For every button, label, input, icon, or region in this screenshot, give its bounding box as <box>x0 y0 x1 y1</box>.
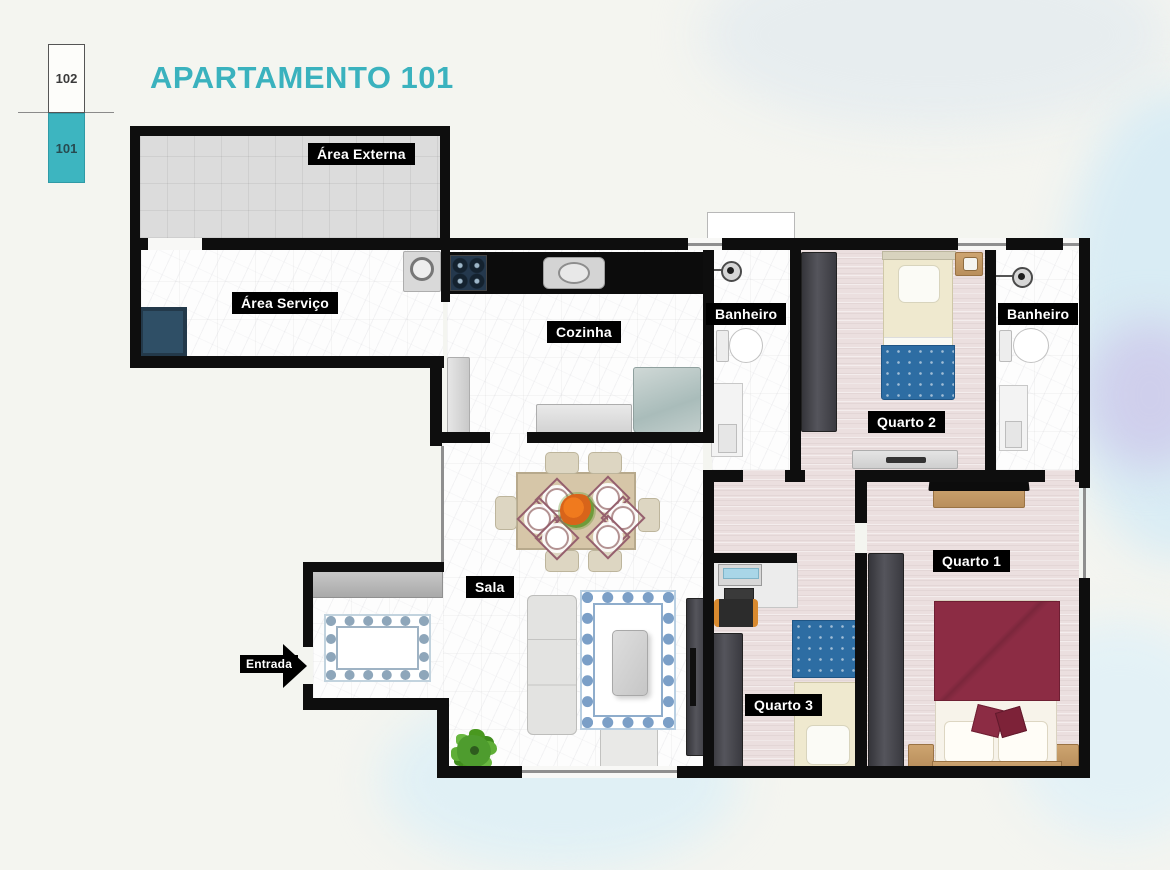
plate-icon <box>545 526 569 550</box>
bathroom-vanity <box>711 383 743 457</box>
nightstand <box>908 744 934 768</box>
dresser-handle <box>886 457 926 463</box>
ventilation-shaft <box>707 212 795 240</box>
legend-unit-102-label: 102 <box>56 71 78 86</box>
label-banheiro-1: Banheiro <box>706 303 786 325</box>
wall-quarto3-top <box>710 553 797 563</box>
label-area-servico: Área Serviço <box>232 292 338 314</box>
legend-unit-101-label: 101 <box>56 141 78 156</box>
nightstand <box>955 252 983 276</box>
label-quarto-2: Quarto 2 <box>868 411 945 433</box>
label-entrada: Entrada <box>240 655 298 673</box>
label-quarto-3: Quarto 3 <box>745 694 822 716</box>
door-opening-servico-externa <box>148 238 202 250</box>
dining-chair <box>495 496 517 530</box>
legend-unit-101[interactable]: 101 <box>48 113 85 183</box>
tv-screen <box>690 648 696 706</box>
wall-servico-bottom <box>130 356 444 368</box>
wall-quarto3-quarto1-lower <box>855 553 867 778</box>
wall-bottom-a <box>437 766 522 778</box>
legend-unit-102[interactable]: 102 <box>48 44 85 113</box>
bed-blanket-blue <box>792 620 860 678</box>
wall-banheiro1-quarto2 <box>790 250 801 470</box>
window-top-2-line <box>958 243 1006 246</box>
wardrobe <box>801 252 837 432</box>
toilet-tank <box>716 330 729 362</box>
dresser <box>852 450 958 469</box>
monitor-screen <box>723 568 759 579</box>
wall-cozinha-bottom-b <box>527 432 714 443</box>
toilet <box>1013 328 1049 363</box>
plate-icon <box>596 525 620 549</box>
page-title: APARTAMENTO 101 <box>150 60 454 96</box>
floor-plan-page: { "header": { "title": "APARTAMENTO 101"… <box>0 0 1170 823</box>
wall-hall-left-upper <box>303 562 313 647</box>
wardrobe <box>868 553 904 771</box>
office-chair <box>714 599 758 627</box>
wall-cozinha-bottom-a <box>441 432 490 443</box>
wall-sala-right-lower <box>703 482 714 778</box>
bed-blanket-blue <box>881 345 955 400</box>
bed-headboard <box>882 251 956 260</box>
wall-right-upper <box>1079 238 1090 488</box>
plant-pot <box>470 746 479 755</box>
label-sala: Sala <box>466 576 514 598</box>
wall-divider-b <box>785 470 805 482</box>
bed-blanket-maroon <box>934 601 1060 701</box>
laundry-tank <box>139 307 187 357</box>
shower-icon <box>721 261 742 282</box>
bathroom-vanity <box>999 385 1028 451</box>
computer-monitor <box>718 564 762 586</box>
window-right-line <box>1083 488 1086 578</box>
wall-hall-bottom <box>303 698 449 710</box>
kitchen-island <box>536 404 632 434</box>
window-top-1-line <box>688 243 722 246</box>
label-quarto-1: Quarto 1 <box>933 550 1010 572</box>
sofa <box>527 595 577 735</box>
wardrobe <box>709 633 743 773</box>
shower-icon <box>1012 267 1033 288</box>
wall-quarto2-banheiro2 <box>985 250 996 470</box>
cooktop <box>450 255 487 291</box>
refrigerator <box>447 357 470 434</box>
wall-divider-a <box>703 470 743 482</box>
label-cozinha: Cozinha <box>547 321 621 343</box>
toilet <box>729 328 763 363</box>
wall-divider-d <box>1075 470 1090 482</box>
label-banheiro-2: Banheiro <box>998 303 1078 325</box>
wall-top <box>130 238 1090 250</box>
label-area-externa: Área Externa <box>308 143 415 165</box>
wall-quarto3-quarto1-upper <box>855 470 867 523</box>
wall-divider-c <box>855 470 1045 482</box>
bed-pillow <box>898 265 940 303</box>
dining-chair <box>545 452 579 474</box>
coffee-table <box>612 630 648 696</box>
double-bed <box>935 600 1057 770</box>
bed-pillow <box>806 725 850 765</box>
dining-chair <box>588 452 622 474</box>
wall-sala-right-upper <box>703 250 714 443</box>
wall-hall-top <box>303 562 444 572</box>
kitchen-sink-basin <box>558 262 590 284</box>
washing-machine-drum-icon <box>410 257 434 281</box>
armchair <box>600 722 658 772</box>
watercolor-top-right <box>700 0 1170 130</box>
entrance-rug <box>326 616 429 680</box>
stove <box>633 367 701 434</box>
wall-right-lower <box>1079 578 1090 778</box>
toilet-tank <box>999 330 1012 362</box>
alarm-clock-icon <box>963 257 978 271</box>
wall-servico-left <box>130 238 141 368</box>
wall-servico-cozinha-divider <box>441 250 450 302</box>
window-bottom-line <box>522 770 677 773</box>
window-sala-left-line <box>441 446 444 562</box>
wall-bottom-b <box>677 766 1090 778</box>
